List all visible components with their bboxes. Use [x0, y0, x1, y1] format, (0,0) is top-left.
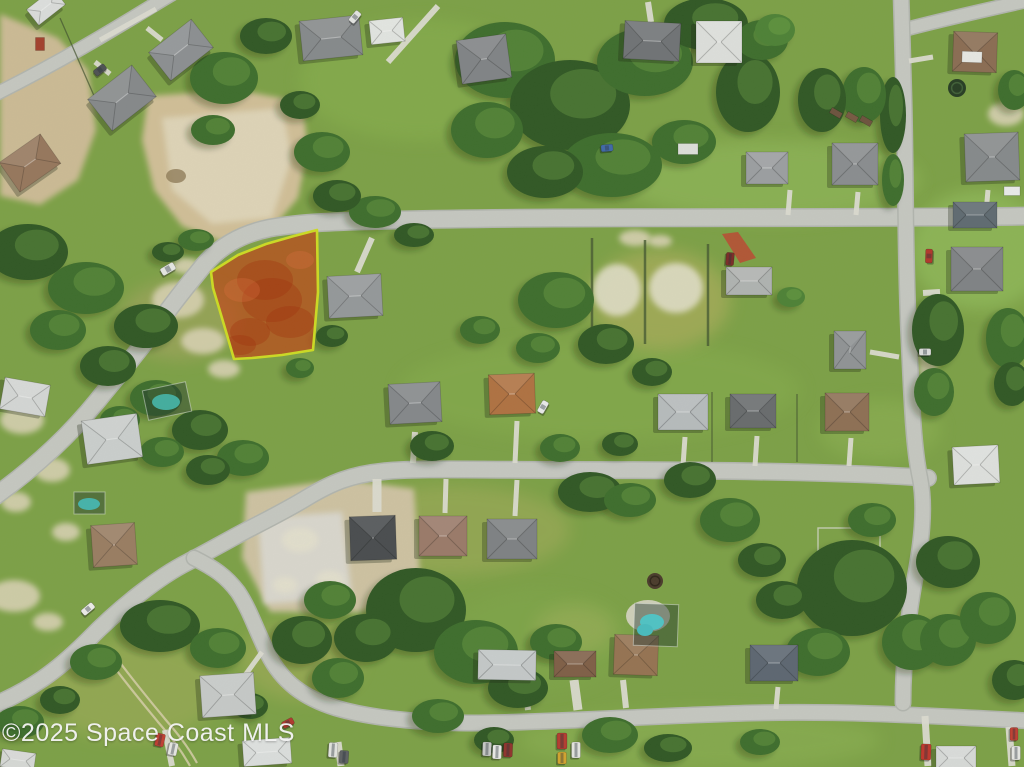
photo-grain — [0, 0, 1024, 767]
mls-watermark: ©2025 Space Coast MLS — [2, 719, 295, 748]
aerial-photo-canvas — [0, 0, 1024, 767]
aerial-photo: ©2025 Space Coast MLS — [0, 0, 1024, 767]
